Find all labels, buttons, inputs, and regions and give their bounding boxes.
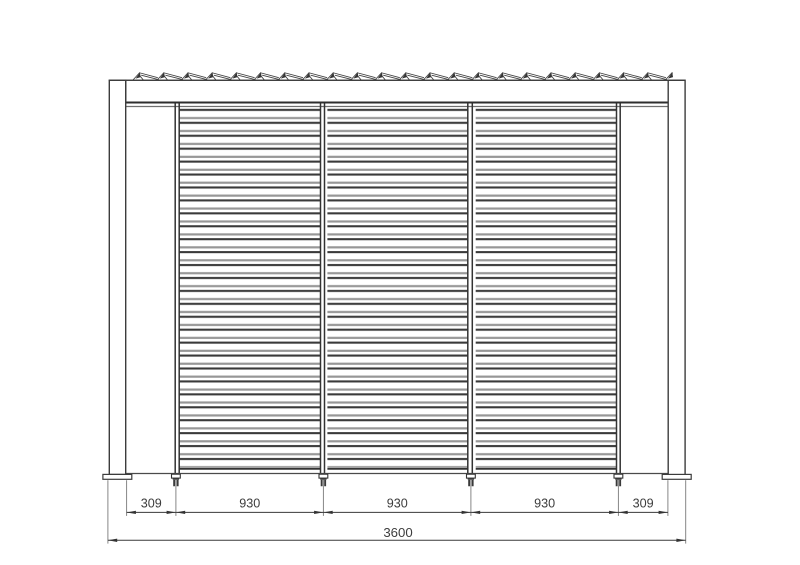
svg-text:309: 309 — [141, 496, 162, 510]
svg-text:930: 930 — [534, 496, 555, 510]
svg-text:930: 930 — [239, 496, 260, 510]
svg-text:3600: 3600 — [383, 525, 412, 540]
svg-text:309: 309 — [633, 496, 654, 510]
svg-text:930: 930 — [387, 496, 408, 510]
